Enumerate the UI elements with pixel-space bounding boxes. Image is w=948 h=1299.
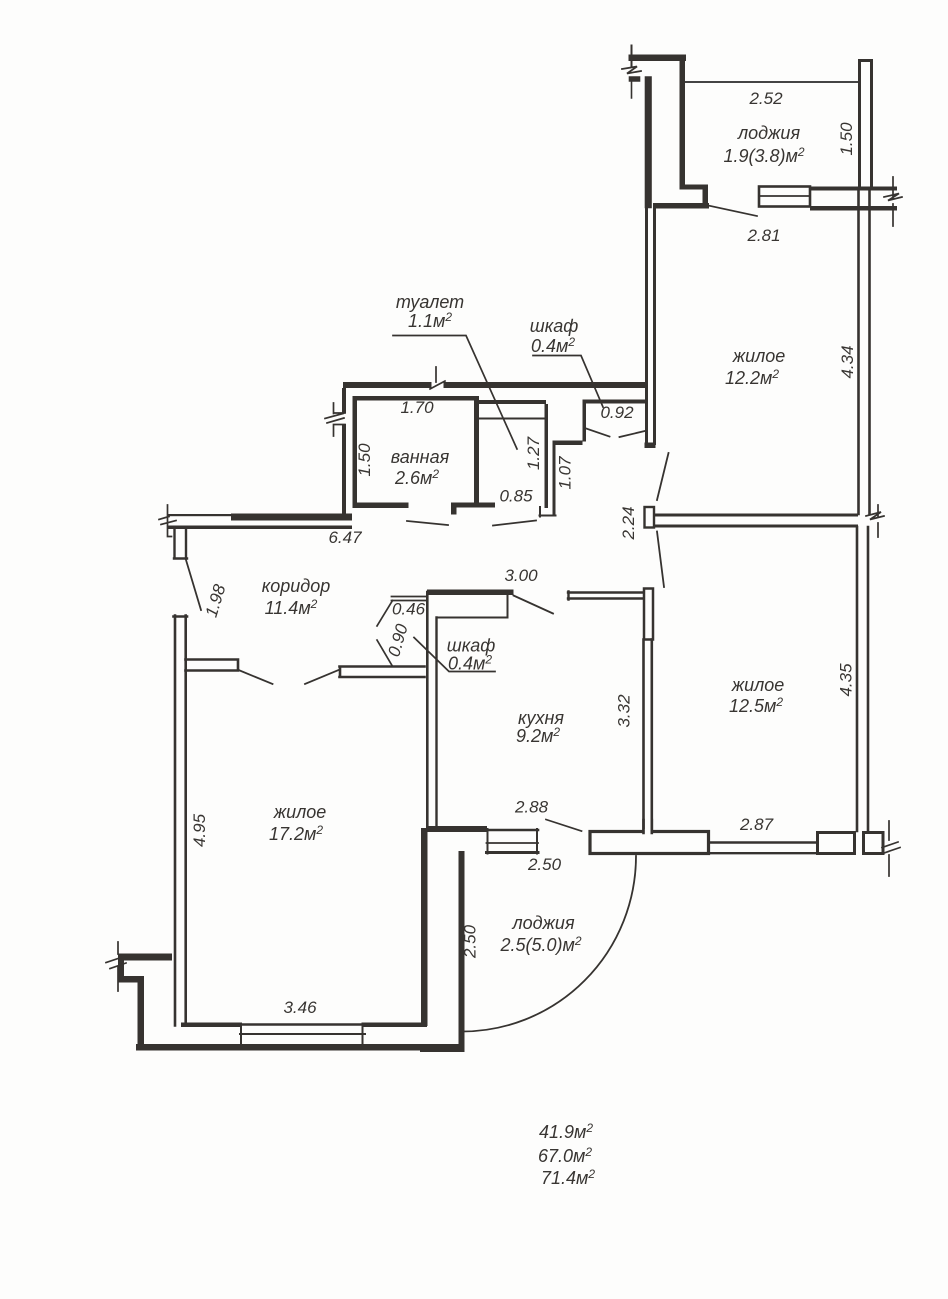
svg-text:2.24: 2.24 <box>619 506 638 540</box>
svg-text:2.52: 2.52 <box>748 89 783 108</box>
svg-text:1.07: 1.07 <box>556 456 575 490</box>
svg-text:жилое: жилое <box>731 675 785 695</box>
svg-text:шкаф: шкаф <box>530 316 579 336</box>
svg-text:4.95: 4.95 <box>190 813 209 847</box>
svg-text:4.34: 4.34 <box>838 345 857 378</box>
svg-text:лоджия: лоджия <box>511 913 575 933</box>
svg-text:4.35: 4.35 <box>837 663 856 697</box>
svg-text:67.0м2: 67.0м2 <box>538 1145 592 1166</box>
svg-text:11.4м2: 11.4м2 <box>265 597 318 618</box>
svg-text:2.87: 2.87 <box>739 815 774 834</box>
svg-text:2.81: 2.81 <box>746 226 780 245</box>
svg-text:12.5м2: 12.5м2 <box>729 695 783 716</box>
svg-text:3.00: 3.00 <box>504 566 538 585</box>
svg-text:41.9м2: 41.9м2 <box>539 1121 593 1142</box>
svg-text:жилое: жилое <box>732 346 786 366</box>
svg-text:3.32: 3.32 <box>615 694 634 728</box>
svg-text:ванная: ванная <box>391 447 450 467</box>
svg-text:6.47: 6.47 <box>328 528 362 547</box>
svg-text:0.46: 0.46 <box>392 600 426 619</box>
svg-text:3.46: 3.46 <box>283 998 317 1017</box>
svg-text:71.4м2: 71.4м2 <box>541 1167 595 1188</box>
svg-text:2.5(5.0)м2: 2.5(5.0)м2 <box>499 934 581 955</box>
svg-text:1.9(3.8)м2: 1.9(3.8)м2 <box>723 145 804 166</box>
svg-text:1.27: 1.27 <box>524 436 543 470</box>
svg-text:0.85: 0.85 <box>499 487 533 506</box>
svg-text:лоджия: лоджия <box>737 123 801 143</box>
svg-text:2.50: 2.50 <box>527 855 562 874</box>
svg-text:1.50: 1.50 <box>355 443 374 477</box>
svg-text:1.50: 1.50 <box>837 122 856 156</box>
svg-text:коридор: коридор <box>262 576 331 596</box>
svg-text:жилое: жилое <box>273 802 327 822</box>
svg-text:0.92: 0.92 <box>600 403 634 422</box>
svg-text:2.50: 2.50 <box>461 924 480 959</box>
svg-text:2.88: 2.88 <box>514 798 549 817</box>
svg-text:туалет: туалет <box>396 292 464 312</box>
svg-text:17.2м2: 17.2м2 <box>269 823 323 844</box>
svg-text:12.2м2: 12.2м2 <box>725 367 779 388</box>
svg-text:1.70: 1.70 <box>400 398 434 417</box>
